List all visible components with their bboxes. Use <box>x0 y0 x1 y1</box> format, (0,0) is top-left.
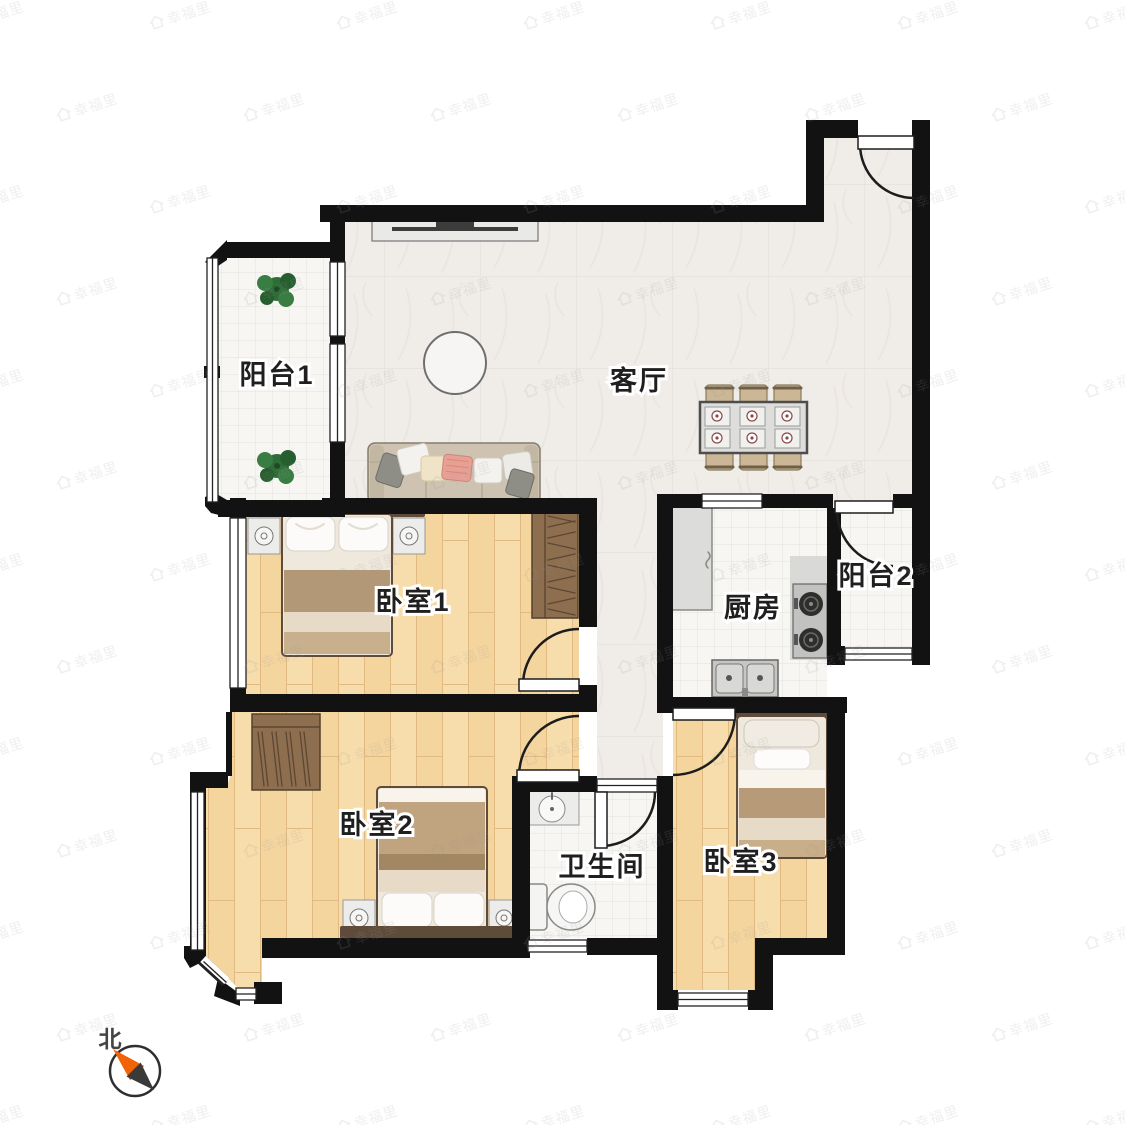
bed-bedroom3 <box>734 704 827 858</box>
stove <box>790 556 827 660</box>
window-bedroom3-bottom <box>678 993 748 1006</box>
threshold-bathroom <box>597 779 657 792</box>
room-label-balcony2: 阳台2 <box>838 560 913 591</box>
floorplan-page: 幸福里 <box>0 0 1125 1125</box>
window-bedroom1-left <box>230 518 246 688</box>
kitchen-sink <box>712 660 778 697</box>
room-label-living: 客厅 <box>610 365 668 396</box>
compass: 北 <box>99 1026 162 1097</box>
round-table <box>424 332 486 394</box>
opening-kitchen <box>702 494 762 508</box>
sliding-door-balcony1 <box>330 262 345 442</box>
toilet <box>527 884 595 930</box>
fridge <box>668 506 712 610</box>
room-label-balcony1: 阳台1 <box>239 359 314 390</box>
bathroom-sink <box>527 791 579 825</box>
room-label-kitchen: 厨房 <box>724 593 782 623</box>
dining-set <box>700 385 807 470</box>
watermarks <box>0 0 1125 1125</box>
room-label-bedroom3: 卧室3 <box>703 846 778 877</box>
room-label-bedroom2: 卧室2 <box>339 809 414 840</box>
wardrobe-bedroom2 <box>252 714 320 790</box>
room-label-bathroom: 卫生间 <box>559 852 646 882</box>
room-label-bedroom1: 卧室1 <box>375 586 450 617</box>
floorplan-svg: 幸福里 <box>0 0 1125 1125</box>
